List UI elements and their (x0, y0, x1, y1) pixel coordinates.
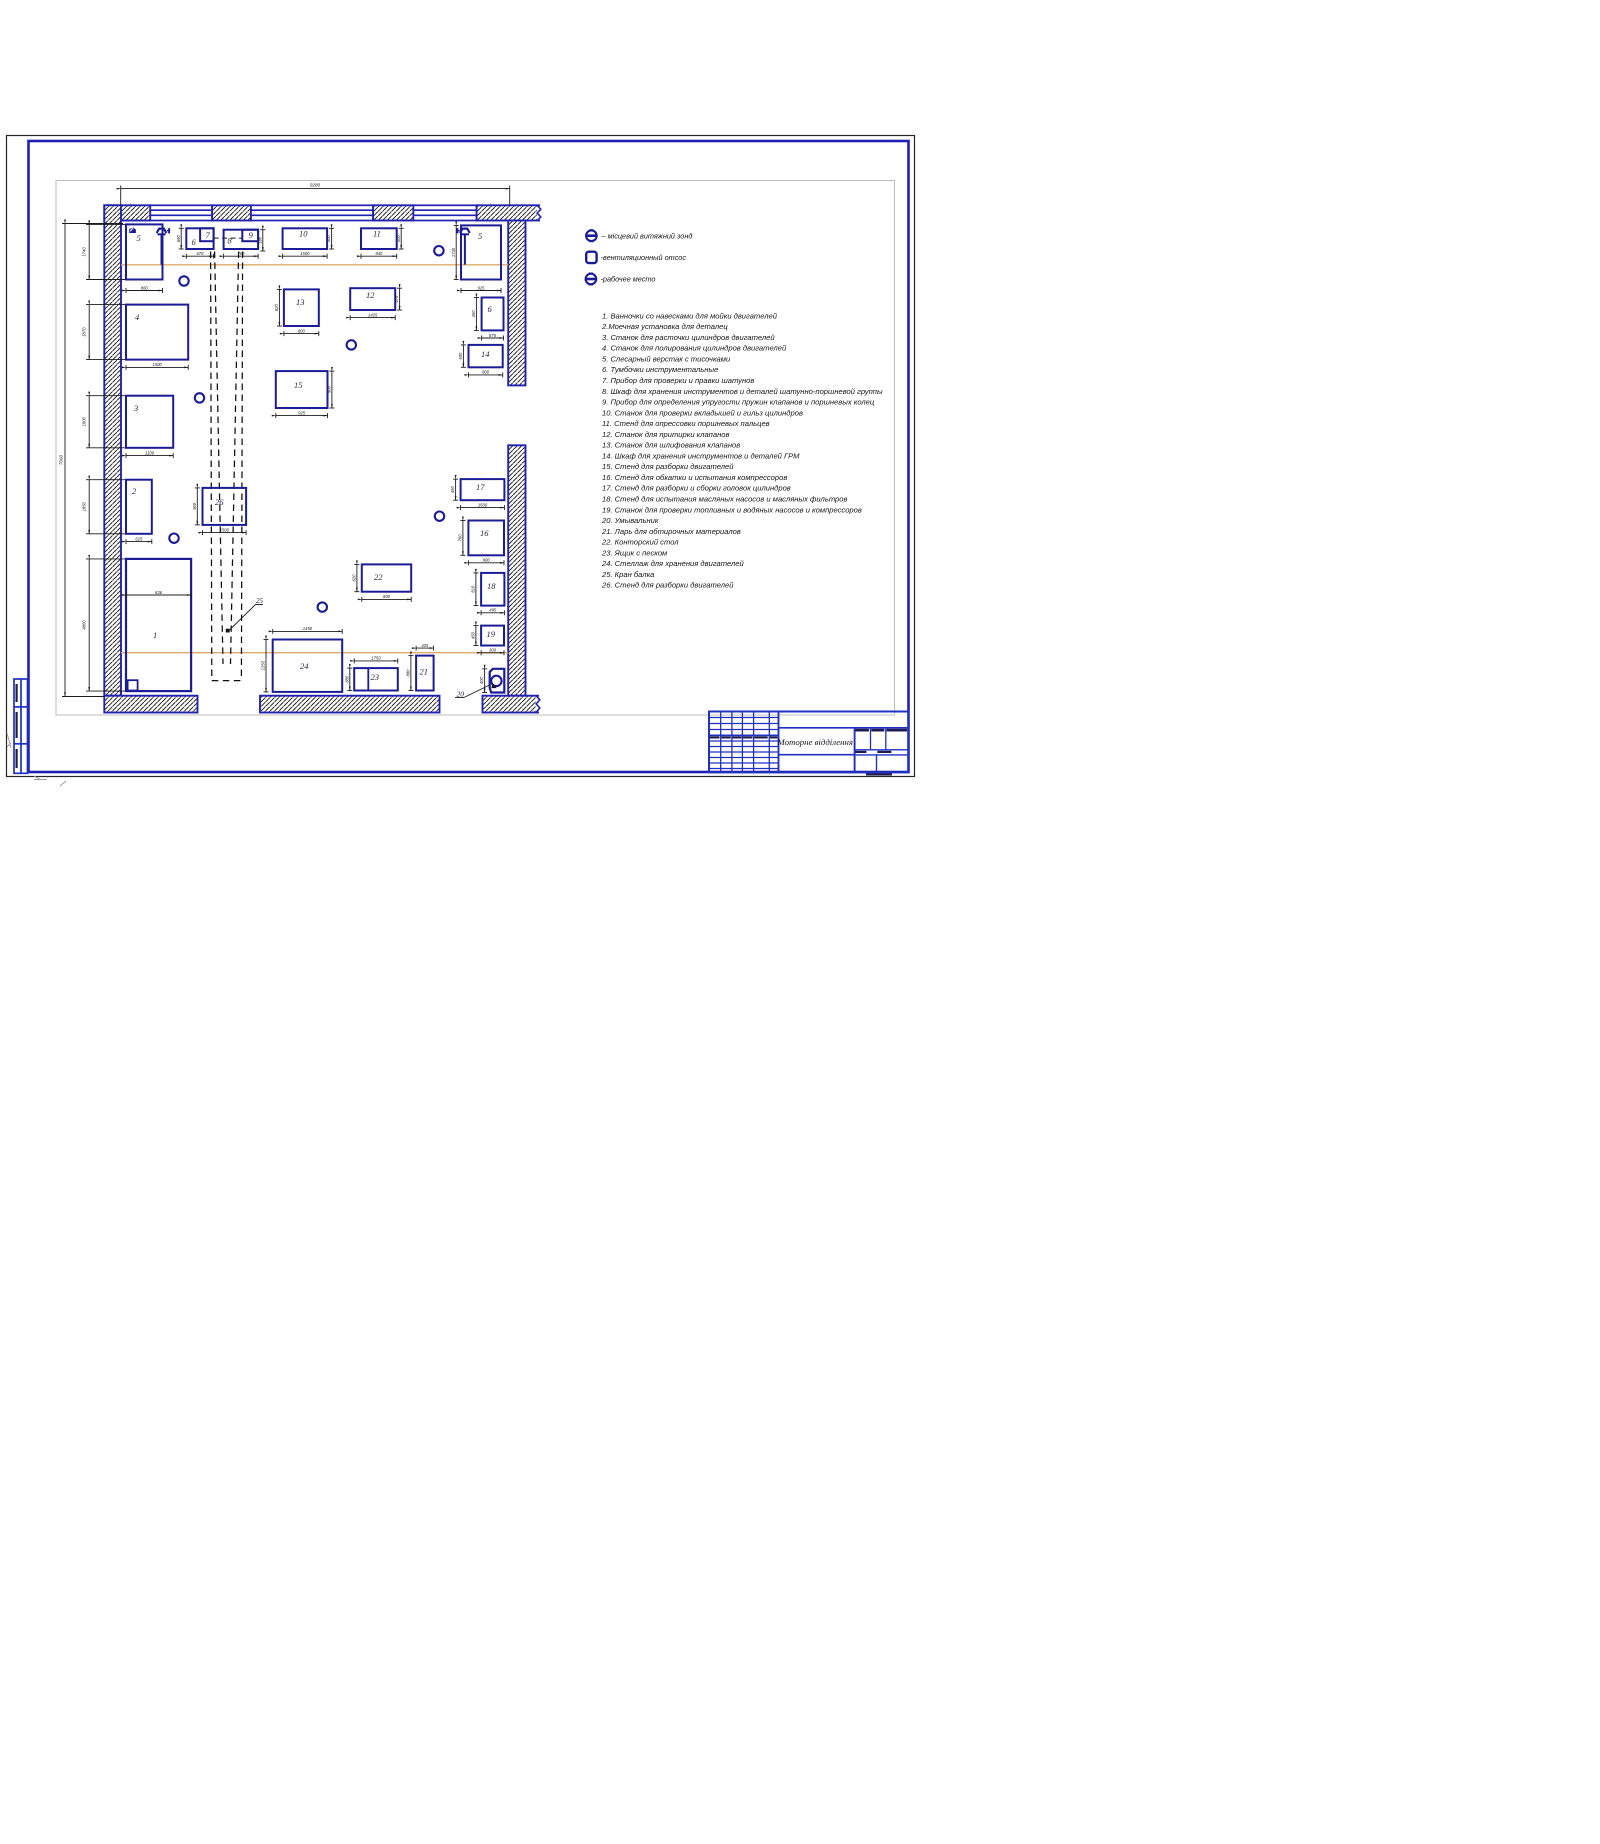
svg-text:23. Ящик с песком: 23. Ящик с песком (601, 548, 668, 557)
svg-text:875: 875 (489, 333, 497, 338)
svg-text:1750: 1750 (371, 656, 381, 661)
svg-text:690: 690 (176, 234, 181, 242)
svg-text:22. Конторский стол: 22. Конторский стол (601, 538, 679, 547)
svg-text:5: 5 (478, 231, 482, 241)
svg-text:17. Стенд для разборки и сборк: 17. Стенд для разборки и сборки головок … (602, 484, 791, 493)
svg-text:Моторне відділення: Моторне відділення (776, 737, 853, 747)
svg-text:940: 940 (375, 251, 383, 256)
svg-text:390: 390 (257, 236, 262, 244)
svg-text:800: 800 (298, 328, 306, 333)
svg-text:880: 880 (344, 675, 349, 683)
svg-text:18: 18 (487, 581, 496, 591)
svg-text:11: 11 (373, 229, 381, 239)
svg-text:12: 12 (366, 290, 375, 300)
svg-text:1800: 1800 (82, 416, 87, 426)
svg-text:1500: 1500 (220, 527, 230, 532)
svg-text:1. Ванночки со навесками для м: 1. Ванночки со навесками для мойки двига… (602, 311, 778, 320)
svg-text:15: 15 (294, 380, 303, 390)
svg-text:475: 475 (394, 295, 399, 303)
svg-text:495: 495 (489, 608, 497, 613)
svg-text:7. Прибор для проверки и правк: 7. Прибор для проверки и правки шатунов (602, 376, 754, 385)
svg-text:670: 670 (196, 251, 204, 256)
svg-text:925: 925 (478, 285, 486, 290)
svg-text:19: 19 (487, 629, 496, 639)
svg-text:3: 3 (133, 403, 138, 413)
svg-text:-вентиляционный отсос: -вентиляционный отсос (601, 253, 687, 262)
svg-text:450: 450 (471, 310, 476, 318)
svg-text:800: 800 (482, 370, 490, 375)
svg-text:5. Слесарный верстак с тисочка: 5. Слесарный верстак с тисочками (602, 355, 731, 364)
svg-text:860: 860 (141, 285, 149, 290)
svg-text:760: 760 (458, 534, 463, 542)
svg-text:1740: 1740 (82, 247, 87, 257)
svg-text:24. Стеллаж для хранения двига: 24. Стеллаж для хранения двигателей (601, 559, 744, 568)
svg-text:4800: 4800 (82, 620, 87, 630)
svg-text:9280: 9280 (310, 183, 321, 188)
svg-text:10. Станок для проверки вклады: 10. Станок для проверки вкладышей и гиль… (602, 408, 803, 417)
svg-text:450: 450 (450, 485, 455, 493)
svg-text:20. Умывальник: 20. Умывальник (601, 516, 659, 525)
svg-text:1: 1 (153, 630, 157, 640)
svg-text:11. Стенд для опрессовки поршн: 11. Стенд для опрессовки поршневых пальц… (602, 419, 770, 428)
svg-text:625: 625 (135, 536, 143, 541)
svg-text:900: 900 (483, 558, 491, 563)
svg-text:-рабочее место: -рабочее место (601, 275, 656, 284)
svg-text:25: 25 (256, 597, 264, 605)
svg-text:17: 17 (476, 482, 485, 492)
svg-text:400: 400 (479, 676, 484, 684)
svg-text:16. Стенд для обкатки и испыта: 16. Стенд для обкатки и испытания компре… (602, 473, 787, 482)
svg-text:900: 900 (327, 385, 332, 393)
svg-text:19. Станок для проверки топлив: 19. Станок для проверки топливных и водя… (602, 505, 862, 514)
svg-text:26. Стенд для разборки двигате: 26. Стенд для разборки двигателей (601, 581, 734, 590)
svg-text:500: 500 (458, 352, 463, 360)
svg-text:3. Станок для расточки цилиндр: 3. Станок для расточки цилиндров двигате… (602, 333, 775, 342)
svg-text:500: 500 (396, 234, 401, 242)
svg-text:26: 26 (215, 497, 224, 507)
svg-text:300: 300 (489, 648, 497, 653)
svg-text:4. Станок для полирования цили: 4. Станок для полирования цилиндров двиг… (602, 344, 787, 353)
svg-text:810: 810 (471, 585, 476, 593)
svg-text:8. Шкаф для хранения инструмен: 8. Шкаф для хранения инструментов и дета… (602, 387, 883, 396)
svg-text:1250: 1250 (261, 660, 266, 670)
svg-text:800: 800 (383, 594, 391, 599)
svg-text:7060: 7060 (59, 454, 64, 465)
svg-text:500: 500 (326, 234, 331, 242)
svg-text:1850: 1850 (82, 501, 87, 511)
svg-text:21. Ларь для обтирочных матери: 21. Ларь для обтирочных материалов (601, 527, 741, 536)
svg-text:14. Шкаф для хранения инструме: 14. Шкаф для хранения инструментов и дет… (602, 451, 800, 460)
svg-text:1500: 1500 (478, 502, 488, 507)
svg-text:880: 880 (406, 669, 411, 677)
svg-text:16: 16 (480, 528, 489, 538)
svg-text:620: 620 (352, 574, 357, 582)
svg-text:25. Кран балка: 25. Кран балка (601, 570, 654, 579)
svg-text:20: 20 (457, 689, 465, 698)
svg-text:450: 450 (471, 631, 476, 639)
svg-text:15. Стенд для разборки двигате: 15. Стенд для разборки двигателей (602, 462, 734, 471)
svg-text:– місцевий витяжний зонд: – місцевий витяжний зонд (601, 231, 693, 240)
svg-text:760: 760 (237, 251, 245, 256)
svg-text:13: 13 (296, 297, 305, 307)
svg-text:1500: 1500 (300, 251, 310, 256)
svg-text:435: 435 (421, 643, 429, 648)
svg-text:1450: 1450 (303, 626, 313, 631)
svg-text:14: 14 (481, 349, 490, 359)
svg-text:836: 836 (155, 590, 163, 595)
svg-text:10: 10 (299, 229, 308, 239)
svg-text:24: 24 (300, 661, 309, 671)
svg-text:22: 22 (374, 572, 383, 582)
svg-text:1500: 1500 (152, 362, 162, 367)
svg-text:2.Моечная установка для детале: 2.Моечная установка для деталец (601, 322, 728, 331)
svg-text:960: 960 (192, 502, 197, 510)
svg-text:820: 820 (274, 304, 279, 312)
svg-text:18. Стенд для испытания маслян: 18. Стенд для испытания масляных насосов… (602, 495, 848, 504)
svg-text:13. Станок для шлифования клап: 13. Станок для шлифования клапанов (602, 441, 740, 450)
svg-text:6. Тумбочки инструментальные: 6. Тумбочки инструментальные (602, 365, 718, 374)
svg-text:1100: 1100 (145, 450, 155, 455)
svg-text:23: 23 (371, 672, 380, 682)
svg-text:925: 925 (298, 410, 306, 415)
svg-text:1870: 1870 (82, 327, 87, 337)
svg-text:5: 5 (137, 233, 141, 243)
svg-text:9. Прибор для определения упру: 9. Прибор для определения упругости пруж… (602, 398, 875, 407)
svg-text:21: 21 (420, 667, 429, 677)
svg-text:1425: 1425 (368, 312, 378, 317)
svg-text:12. Станок для притирки клапан: 12. Станок для притирки клапанов (602, 430, 729, 439)
svg-text:1740: 1740 (451, 247, 456, 257)
